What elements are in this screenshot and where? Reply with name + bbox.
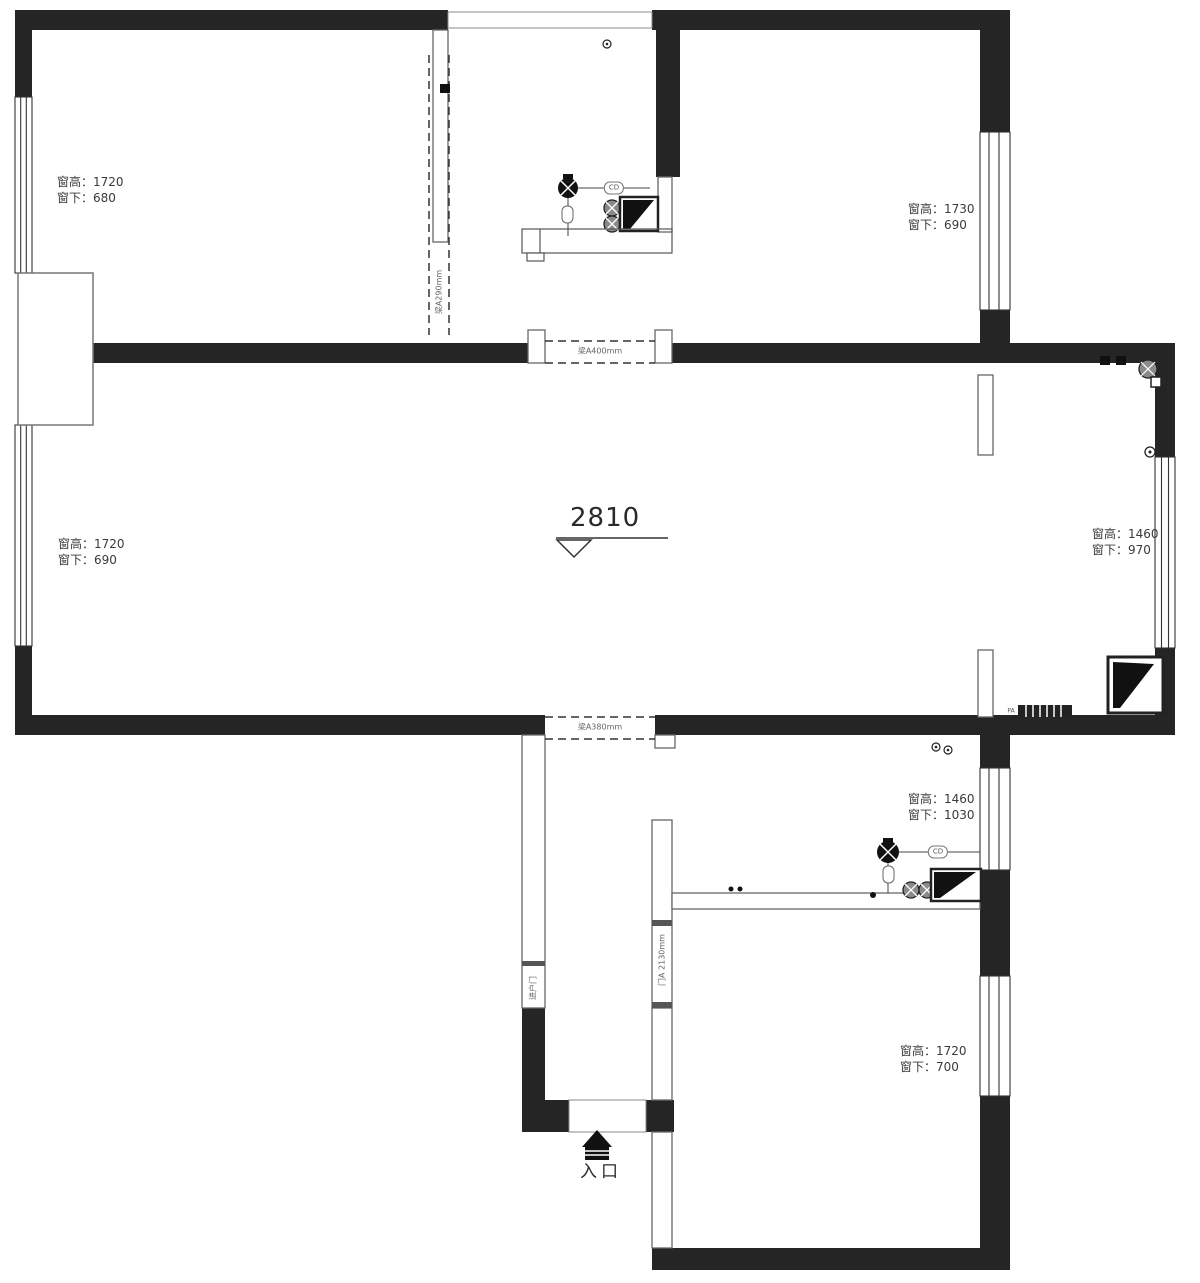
window-mid-left bbox=[15, 425, 32, 646]
window-top-left bbox=[15, 97, 32, 273]
pipe-tag-bath: CD bbox=[928, 846, 948, 859]
beam-label-kitchen: 梁A290mm bbox=[434, 270, 445, 314]
window-bottom-right-upper bbox=[980, 768, 1010, 870]
flue-icon bbox=[620, 197, 658, 231]
radiator-tag: PA bbox=[1007, 708, 1014, 715]
pipe-icon bbox=[604, 200, 620, 232]
window-label-top-right: 窗高：1730 窗下：690 bbox=[908, 201, 975, 233]
pipe-tag-kitchen: CD bbox=[604, 182, 624, 195]
height-marker bbox=[556, 538, 668, 557]
counter-outline bbox=[522, 229, 672, 261]
flue-icon-living bbox=[1108, 657, 1163, 713]
bay-box bbox=[18, 273, 93, 425]
window-label-mid-right: 窗高：1460 窗下：970 bbox=[1092, 526, 1159, 558]
entrance-arrow-icon bbox=[582, 1130, 612, 1160]
beam-label-bottom-opening: 梁A380mm bbox=[578, 722, 622, 733]
window-top-right bbox=[980, 132, 1010, 310]
ceiling-height-label: 2810 bbox=[570, 503, 640, 533]
door-opening-label: 门A 2130mm bbox=[657, 934, 668, 986]
window-bottom-right-lower bbox=[980, 976, 1010, 1096]
floor-plan-canvas: 窗高：1720 窗下：680 窗高：1730 窗下：690 窗高：1720 窗下… bbox=[0, 0, 1200, 1283]
entrance-label: 入口 bbox=[580, 1157, 622, 1182]
entry-door-label: 进户门 bbox=[528, 976, 539, 1000]
floor-plan-drawing bbox=[0, 0, 1200, 1283]
flue-icon-bath bbox=[931, 869, 981, 901]
window-label-top-left: 窗高：1720 窗下：680 bbox=[57, 174, 124, 206]
window-label-mid-left: 窗高：1720 窗下：690 bbox=[58, 536, 125, 568]
radiator-icon bbox=[1018, 705, 1072, 717]
window-label-bottom-right-lower: 窗高：1720 窗下：700 bbox=[900, 1043, 967, 1075]
beam-label-top-opening: 梁A400mm bbox=[578, 346, 622, 357]
window-label-bottom-right-upper: 窗高：1460 窗下：1030 bbox=[908, 791, 975, 823]
kitchen-fixtures bbox=[440, 40, 672, 261]
beam-dashed-lines bbox=[429, 55, 655, 739]
